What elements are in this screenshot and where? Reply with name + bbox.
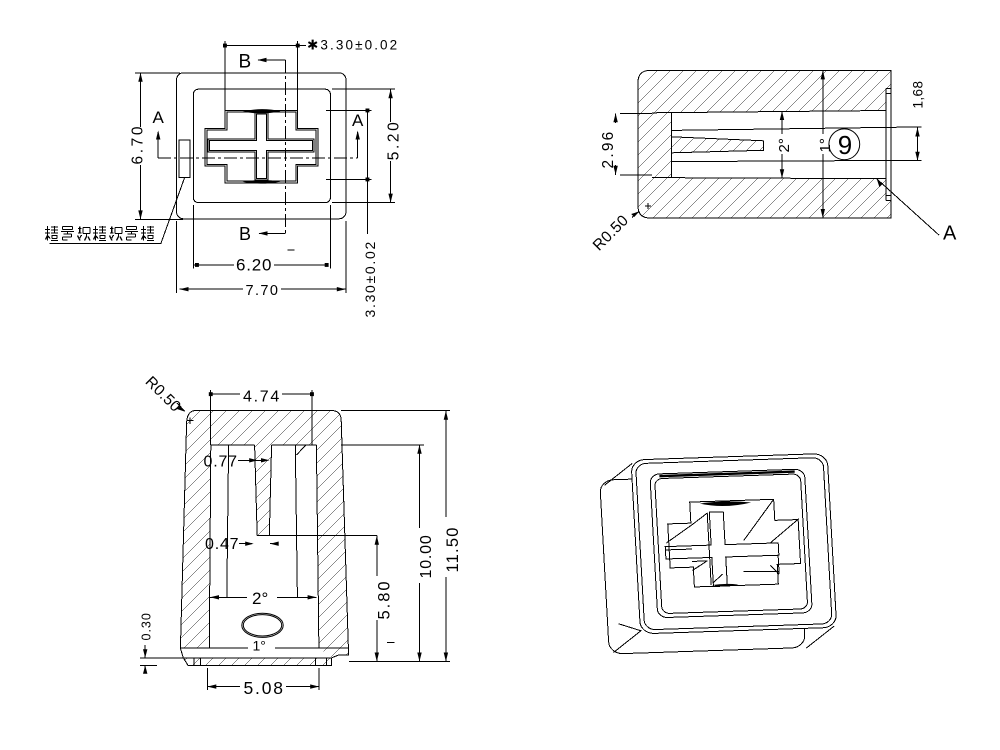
svg-text:2°: 2°: [252, 589, 268, 608]
svg-text:1,68: 1,68: [911, 81, 926, 109]
svg-text:11.50: 11.50: [444, 526, 462, 572]
svg-text:10.00: 10.00: [418, 534, 435, 578]
svg-text:1°: 1°: [253, 638, 266, 654]
svg-text:3.30±0.02: 3.30±0.02: [362, 240, 378, 317]
svg-text:1°: 1°: [817, 138, 834, 152]
svg-text:5.20: 5.20: [385, 120, 402, 161]
svg-text:A: A: [943, 223, 957, 245]
svg-text:0.77: 0.77: [204, 454, 238, 471]
svg-text:4.74: 4.74: [243, 389, 281, 406]
svg-text:2.96: 2.96: [600, 130, 617, 169]
svg-text:B: B: [239, 52, 252, 73]
svg-text:0.47: 0.47: [205, 536, 239, 553]
svg-text:5.80: 5.80: [375, 579, 393, 619]
svg-text:✱3.30±0.02: ✱3.30±0.02: [307, 38, 399, 53]
svg-text:6.70: 6.70: [130, 124, 147, 165]
svg-text:7.70: 7.70: [246, 283, 280, 299]
svg-text:A: A: [352, 111, 364, 130]
svg-text:5.08: 5.08: [244, 678, 285, 698]
svg-text:A: A: [153, 108, 165, 127]
svg-text:9: 9: [838, 130, 852, 160]
svg-text:6.20: 6.20: [236, 256, 272, 275]
svg-text:B: B: [239, 224, 251, 244]
svg-text:0.30: 0.30: [140, 612, 154, 640]
svg-text:2°: 2°: [776, 138, 793, 152]
